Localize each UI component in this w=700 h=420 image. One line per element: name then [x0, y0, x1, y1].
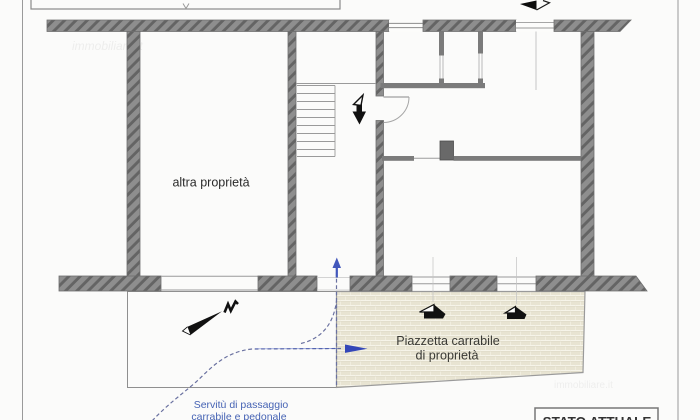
svg-text:di proprietà: di proprietà — [415, 349, 478, 363]
svg-text:immobiliare.it: immobiliare.it — [554, 380, 613, 391]
svg-text:altra proprietà: altra proprietà — [172, 176, 249, 190]
svg-text:Piazzetta carrabile: Piazzetta carrabile — [396, 334, 500, 348]
svg-text:carrabile e pedonale: carrabile e pedonale — [191, 411, 286, 420]
svg-text:Servitù di passaggio: Servitù di passaggio — [194, 399, 289, 411]
svg-text:STATO ATTUALE: STATO ATTUALE — [543, 415, 652, 420]
